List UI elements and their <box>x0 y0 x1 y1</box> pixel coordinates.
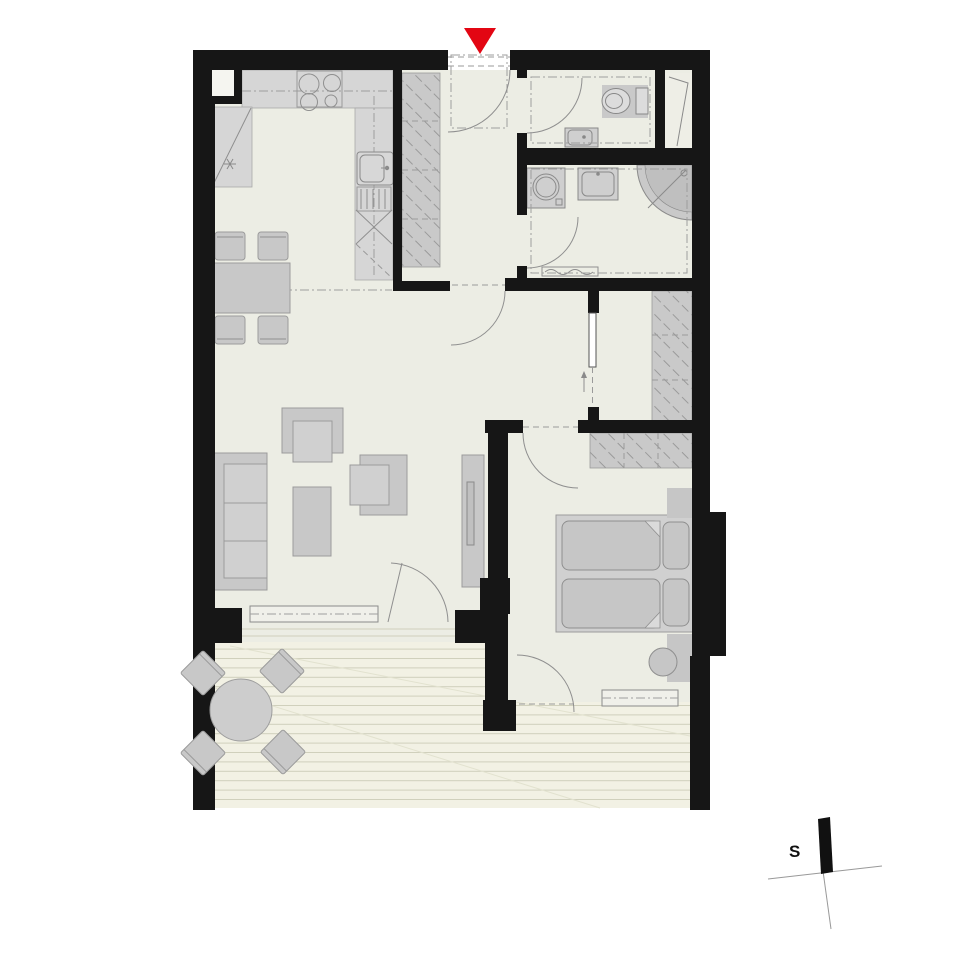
nightstand <box>667 488 694 518</box>
double-bed <box>556 515 694 632</box>
dining-chair <box>215 316 245 344</box>
north-bar-icon <box>818 817 833 874</box>
tv-sideboard <box>462 455 484 587</box>
sofa <box>213 453 267 590</box>
floor-plan-page: S <box>0 0 960 960</box>
stool <box>649 648 677 676</box>
entrance-arrow-icon <box>464 28 496 54</box>
coffee-table <box>293 487 331 556</box>
corridor-wardrobe <box>652 291 692 422</box>
kitchen-shaft-niche <box>212 70 234 96</box>
dining-table <box>213 263 290 313</box>
dining-chair <box>215 232 245 260</box>
terrace-table <box>210 679 272 741</box>
bedroom-window <box>602 690 678 706</box>
bedroom-wardrobe <box>590 433 692 468</box>
terrace-steps <box>215 623 480 642</box>
compass: S <box>768 817 882 929</box>
mattress <box>562 521 660 570</box>
wc-washbasin-icon <box>565 128 598 147</box>
toilet-icon <box>602 85 648 118</box>
pillow <box>663 579 689 626</box>
living-window <box>250 606 378 622</box>
mattress <box>562 579 660 628</box>
dining-chair <box>258 316 288 344</box>
kitchen-sink-icon <box>357 152 393 185</box>
compass-south-label: S <box>789 842 800 861</box>
washing-machine-icon <box>527 168 565 208</box>
pillow <box>663 522 689 569</box>
bath-washbasin-icon <box>578 168 618 200</box>
dining-chair <box>258 232 288 260</box>
floor-plan: S <box>0 0 960 960</box>
duct-niche <box>665 73 692 148</box>
hall-wardrobe <box>402 73 440 267</box>
tv-icon <box>467 482 474 545</box>
